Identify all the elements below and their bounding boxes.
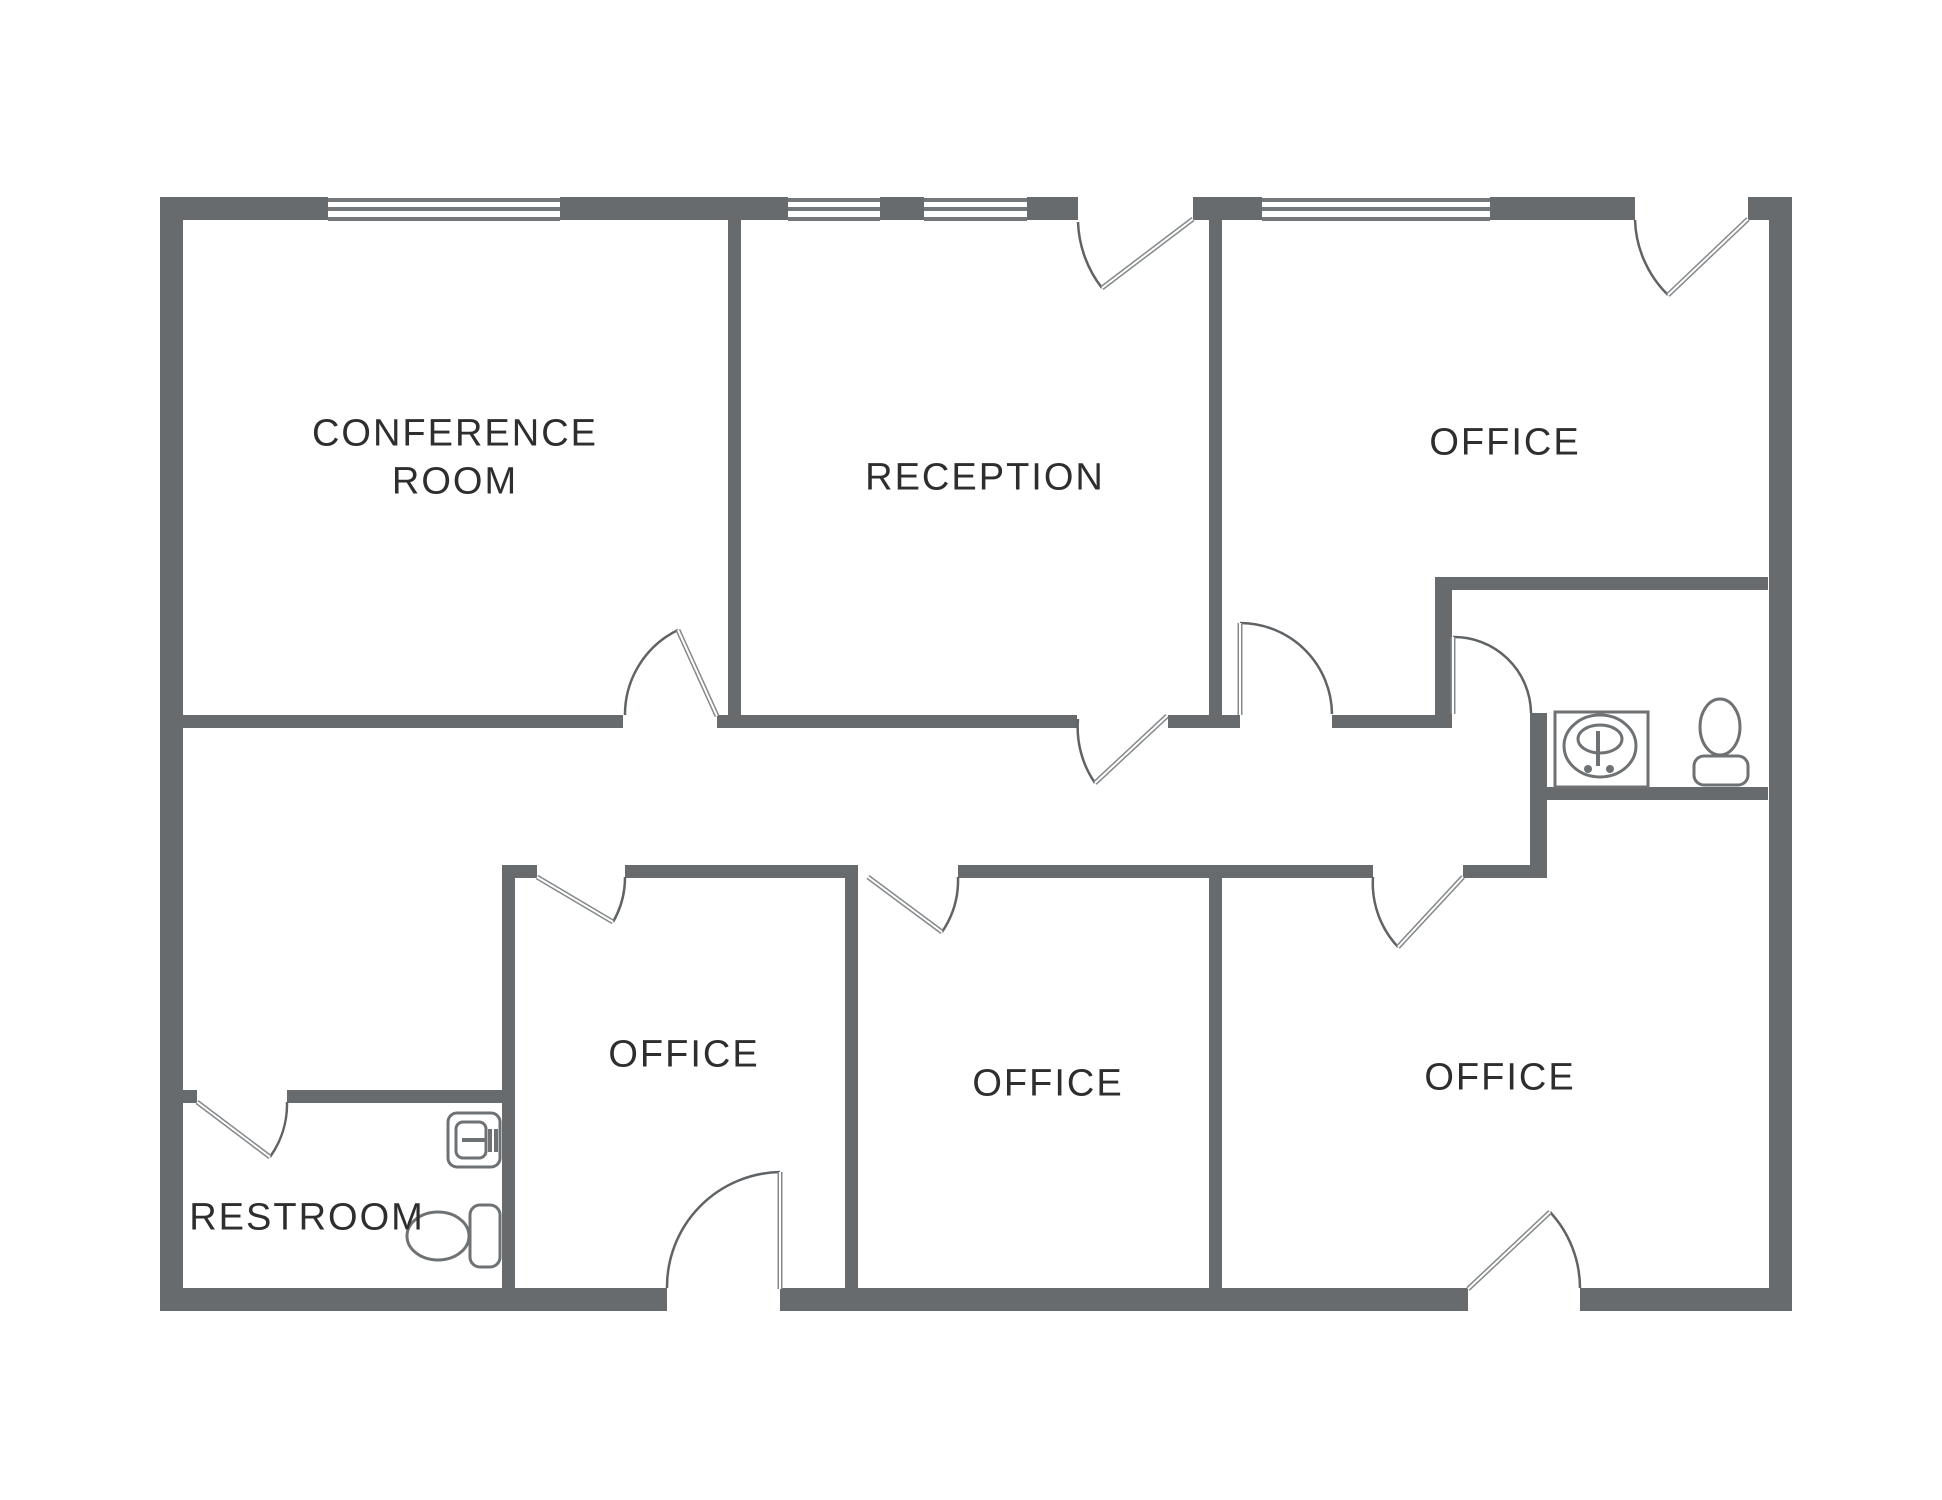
exterior-walls — [160, 197, 1792, 1311]
door-swing-icon-office-top-right-entry — [1635, 219, 1748, 295]
door-swing-icon-reception-hallway — [1078, 716, 1167, 783]
window-icon — [1262, 197, 1490, 221]
door-swing-icon-office-bottom-left-exterior — [667, 1172, 780, 1289]
door-swing-icon-office-bottom-left — [537, 877, 625, 922]
room-label-office-bottom-left: OFFICE — [608, 1031, 759, 1079]
door-swing-icon-office-bottom-right-exterior — [1468, 1212, 1580, 1289]
room-label-office-bottom-middle: OFFICE — [972, 1060, 1123, 1108]
door-swing-icon-office-bottom-middle — [868, 877, 958, 932]
toilet-icon — [1694, 699, 1748, 785]
window-icon — [924, 197, 1027, 221]
door-swing-icon-conference — [625, 630, 717, 716]
door-swing-icon-reception-entry — [1078, 219, 1193, 288]
door-swing-icon-restroom-bottom-left — [197, 1102, 287, 1157]
floor-plan-drawing — [0, 0, 1942, 1500]
room-label-reception: RECEPTION — [865, 454, 1105, 502]
door-swing-icon-office-top-right-lower — [1240, 623, 1332, 715]
window-icon — [788, 197, 880, 221]
room-label-conference: CONFERENCE ROOM — [312, 411, 598, 506]
room-label-office-top-right: OFFICE — [1429, 419, 1580, 467]
interior-walls — [183, 220, 1768, 1288]
sink-icon — [1555, 712, 1648, 787]
window-icon — [328, 197, 560, 221]
floor-plan: CONFERENCE ROOM RECEPTION OFFICE OFFICE … — [0, 0, 1942, 1500]
door-swing-icon-restroom-middle-right — [1453, 637, 1531, 714]
door-swing-icon-office-bottom-right — [1373, 877, 1463, 947]
sink-icon — [448, 1113, 500, 1167]
room-label-office-bottom-right: OFFICE — [1424, 1054, 1575, 1102]
doors — [197, 219, 1748, 1289]
room-label-restroom: RESTROOM — [189, 1194, 425, 1242]
